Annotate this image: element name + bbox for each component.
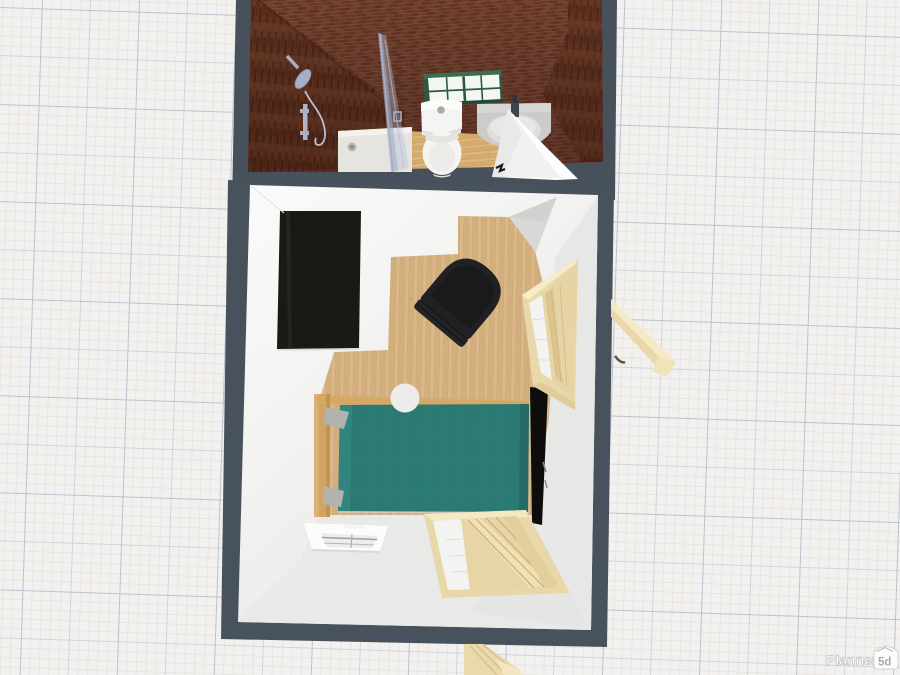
- svg-text:Planner: Planner: [826, 652, 878, 668]
- svg-text:5d: 5d: [878, 657, 891, 669]
